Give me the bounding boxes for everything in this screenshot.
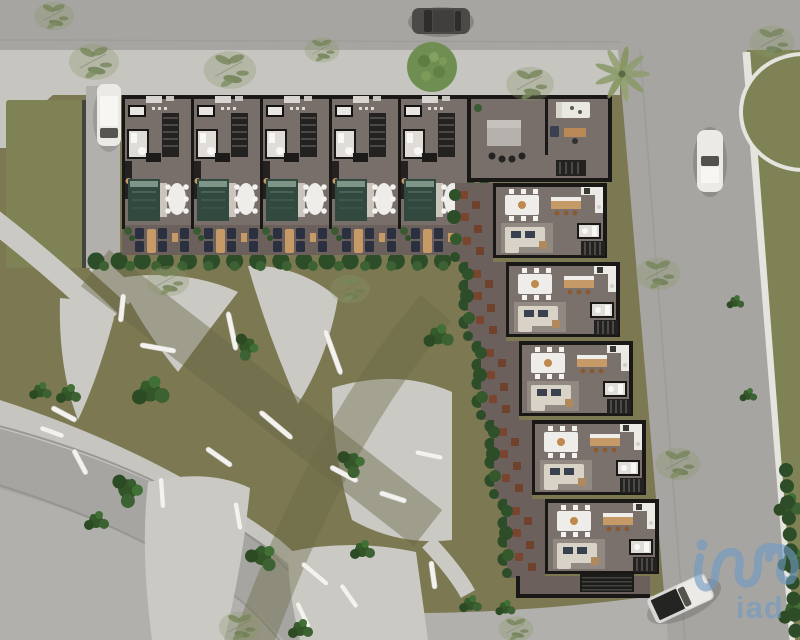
panel-line [582, 589, 632, 591]
white-sedan-right-road [693, 127, 727, 197]
desk-chair [572, 138, 578, 144]
end-wall-left [516, 576, 520, 598]
terraced-unit-4 [329, 95, 398, 255]
sparse-tree [656, 448, 701, 480]
apartment-unit-5 [499, 499, 659, 578]
car-roof [100, 96, 118, 126]
lawn-retaining-edge [82, 100, 86, 268]
sparse-tree [34, 2, 74, 31]
sparse-tree [147, 266, 190, 297]
meeting-table-top [487, 120, 521, 128]
end-wall-bottom [516, 594, 650, 598]
bed-cushion [570, 106, 574, 110]
dark-sedan-top-road [408, 7, 474, 37]
terraced-unit-2 [191, 95, 260, 255]
wing-end-block [516, 574, 650, 598]
apartment-unit-3 [473, 341, 633, 420]
sparse-tree [506, 67, 554, 101]
armchair [550, 126, 559, 137]
desk [564, 128, 586, 137]
apartment-unit-4 [486, 420, 646, 499]
sparse-tree [305, 37, 340, 62]
apartment-unit-2 [460, 262, 620, 341]
panel-line [582, 581, 632, 583]
apartment-unit-1 [447, 183, 607, 262]
top-road [0, 0, 800, 50]
stair-step [571, 162, 573, 174]
sparse-tree [69, 44, 119, 80]
car-windshield [701, 156, 719, 166]
corner-wall-right [608, 95, 612, 182]
panel-line [582, 577, 632, 579]
car-windshield [100, 128, 118, 138]
corner-wall-left [467, 95, 471, 182]
stair-step [565, 162, 567, 174]
indoor-plant [474, 104, 482, 112]
chair [499, 156, 506, 163]
car-roof [701, 167, 719, 183]
stair-step [577, 162, 579, 174]
car-roof [433, 10, 454, 32]
corner-unit [467, 95, 612, 182]
terraced-unit-3 [260, 95, 329, 255]
corner-wall-bottom [467, 178, 612, 182]
bed-pillow [556, 102, 562, 118]
chair [509, 156, 516, 163]
chair [519, 153, 526, 160]
bed-cushion [578, 110, 582, 114]
sparse-tree [750, 26, 795, 58]
panel-line [582, 585, 632, 587]
round-tree [407, 42, 457, 92]
stair-step [559, 162, 561, 174]
white-sedan-driveway [93, 84, 125, 152]
top-row-terraced-units [122, 95, 467, 255]
site-plan-canvas: iad [0, 0, 800, 640]
sparse-tree [330, 275, 370, 304]
car-windshield [424, 10, 432, 32]
chair [489, 153, 496, 160]
sparse-tree [204, 51, 257, 89]
terraced-unit-1 [122, 95, 191, 255]
car-rear-window [455, 11, 461, 31]
logo-wordmark: iad [736, 590, 784, 625]
logo-i-dot [697, 540, 708, 551]
sparse-tree [636, 258, 681, 290]
site-plan-rendering: iad [0, 0, 800, 640]
corner-wall-inner [545, 95, 548, 155]
